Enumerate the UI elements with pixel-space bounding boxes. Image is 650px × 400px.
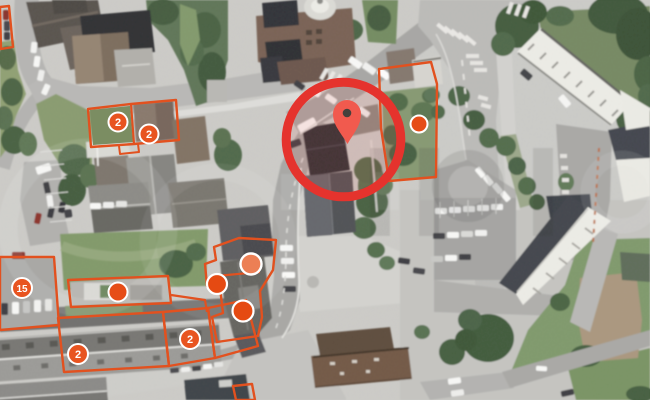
- svg-text:15: 15: [16, 284, 28, 295]
- svg-text:2: 2: [75, 349, 81, 361]
- svg-text:2: 2: [115, 117, 121, 129]
- svg-text:2: 2: [146, 129, 152, 141]
- svg-text:2: 2: [187, 334, 193, 346]
